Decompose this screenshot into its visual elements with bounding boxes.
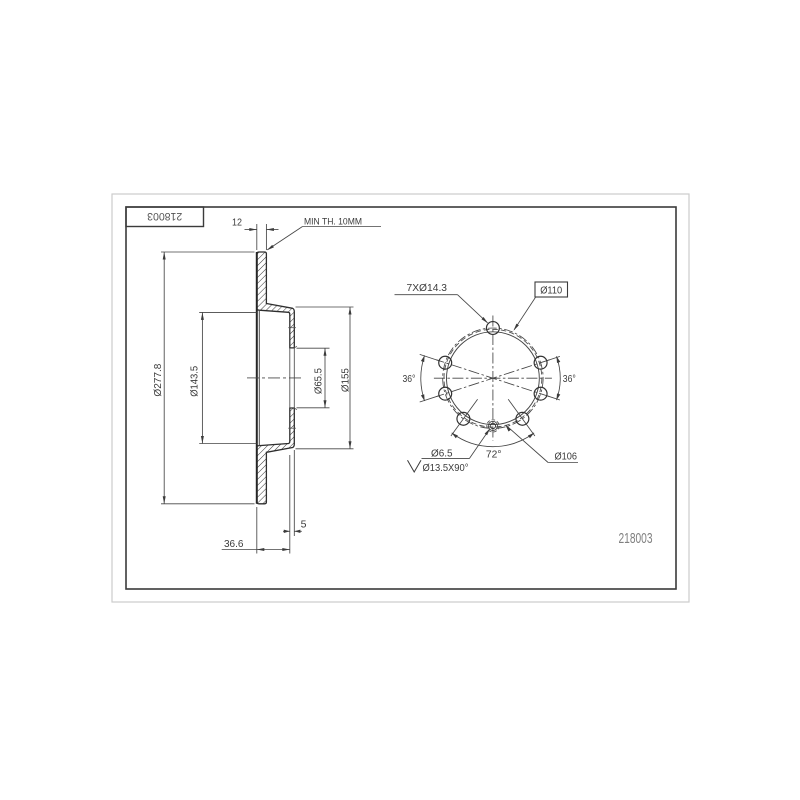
svg-text:Ø6.5: Ø6.5 (431, 448, 453, 460)
svg-text:7XØ14.3: 7XØ14.3 (407, 282, 448, 294)
svg-text:Ø110: Ø110 (540, 284, 562, 296)
svg-text:36°: 36° (403, 374, 416, 385)
svg-text:36.6: 36.6 (224, 538, 244, 550)
svg-text:Ø155: Ø155 (340, 368, 352, 392)
svg-text:12: 12 (232, 217, 242, 229)
svg-text:MIN TH. 10MM: MIN TH. 10MM (304, 216, 362, 227)
svg-text:218003: 218003 (147, 210, 182, 222)
svg-text:Ø277.8: Ø277.8 (152, 363, 164, 396)
svg-text:5: 5 (301, 519, 307, 531)
svg-text:72°: 72° (486, 450, 502, 461)
svg-text:36°: 36° (563, 374, 576, 385)
svg-text:Ø143.5: Ø143.5 (189, 366, 201, 397)
svg-text:Ø13.5X90°: Ø13.5X90° (423, 462, 469, 474)
svg-text:Ø65.5: Ø65.5 (313, 368, 325, 394)
svg-text:Ø106: Ø106 (555, 451, 578, 463)
svg-text:218003: 218003 (619, 530, 653, 547)
